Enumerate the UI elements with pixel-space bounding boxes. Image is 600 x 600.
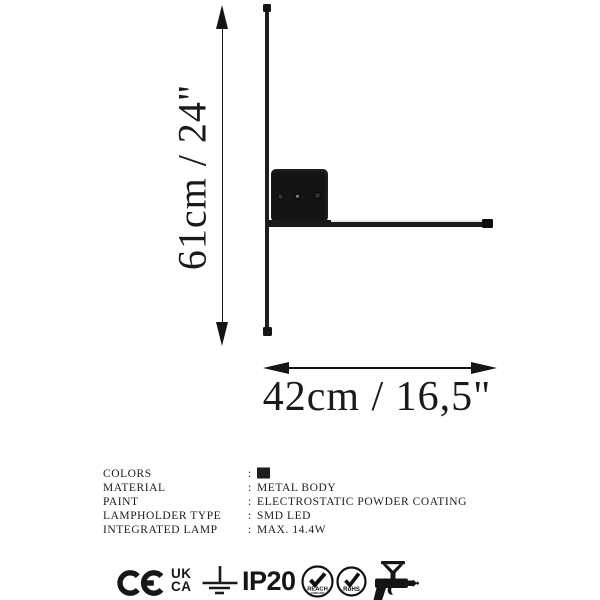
spec-value: SMD LED <box>257 509 467 523</box>
spec-colon: : <box>248 509 257 523</box>
screw-left-icon <box>277 193 284 200</box>
spec-value: MAX. 14.4W <box>257 523 467 537</box>
spec-colon: : <box>248 523 257 537</box>
spec-label: MATERIAL <box>103 481 248 495</box>
spec-table: COLORS : MATERIAL : METAL BODY PAINT : E… <box>103 466 467 537</box>
color-swatch <box>257 468 270 479</box>
spec-label: PAINT <box>103 495 248 509</box>
led-strip-highlight <box>331 220 482 222</box>
spec-label: COLORS <box>103 467 248 481</box>
wall-mount-plate <box>271 169 328 222</box>
screw-right-icon <box>314 192 321 199</box>
powder-coating-gun-icon <box>371 561 419 600</box>
ce-mark-icon <box>117 569 167 597</box>
spec-value: ELECTROSTATIC POWDER COATING <box>257 495 467 509</box>
spec-row-material: MATERIAL : METAL BODY <box>103 481 467 495</box>
reach-badge-icon: REACH COMPLIANT <box>301 565 334 598</box>
spec-colon: : <box>248 495 257 509</box>
ip-rating-label: IP20 <box>242 566 296 597</box>
height-dimension-line <box>222 8 223 342</box>
width-dimension-line <box>267 367 493 368</box>
spec-row-lampholder: LAMPHOLDER TYPE : SMD LED <box>103 509 467 523</box>
rohs-badge-icon: RoHS <box>336 566 367 597</box>
lamp-vertical-bar-bottom-cap <box>263 327 272 336</box>
spec-label: LAMPHOLDER TYPE <box>103 509 248 523</box>
ukca-bottom-label: CA <box>171 581 192 594</box>
lamp-vertical-bar <box>265 7 269 336</box>
spec-label: INTEGRATED LAMP <box>103 523 248 537</box>
width-dimension-label: 42cm / 16,5" <box>263 373 492 421</box>
spec-value: METAL BODY <box>257 481 467 495</box>
spec-colon: : <box>248 481 257 495</box>
arrow-down-icon <box>216 322 228 346</box>
reach-label: REACH <box>307 587 328 593</box>
spec-row-colors: COLORS : <box>103 466 467 481</box>
spec-colon: : <box>248 467 257 481</box>
spec-row-integrated-lamp: INTEGRATED LAMP : MAX. 14.4W <box>103 523 467 537</box>
product-spec-sheet: 61cm / 24" 42cm / 16,5" COLORS : MATERIA… <box>0 0 600 600</box>
reach-sub-label: COMPLIANT <box>311 592 325 595</box>
screw-center-icon <box>294 193 301 200</box>
lamp-horizontal-bar-end-cap <box>482 219 493 228</box>
lamp-vertical-bar-top-cap <box>263 4 271 12</box>
earth-ground-icon <box>201 565 239 598</box>
rohs-label: RoHS <box>343 586 360 593</box>
arrow-right-icon <box>471 362 497 374</box>
ukca-icon: UK CA <box>171 568 192 593</box>
height-dimension-label: 61cm / 24" <box>169 84 216 270</box>
spec-value <box>257 466 467 481</box>
spec-row-paint: PAINT : ELECTROSTATIC POWDER COATING <box>103 495 467 509</box>
